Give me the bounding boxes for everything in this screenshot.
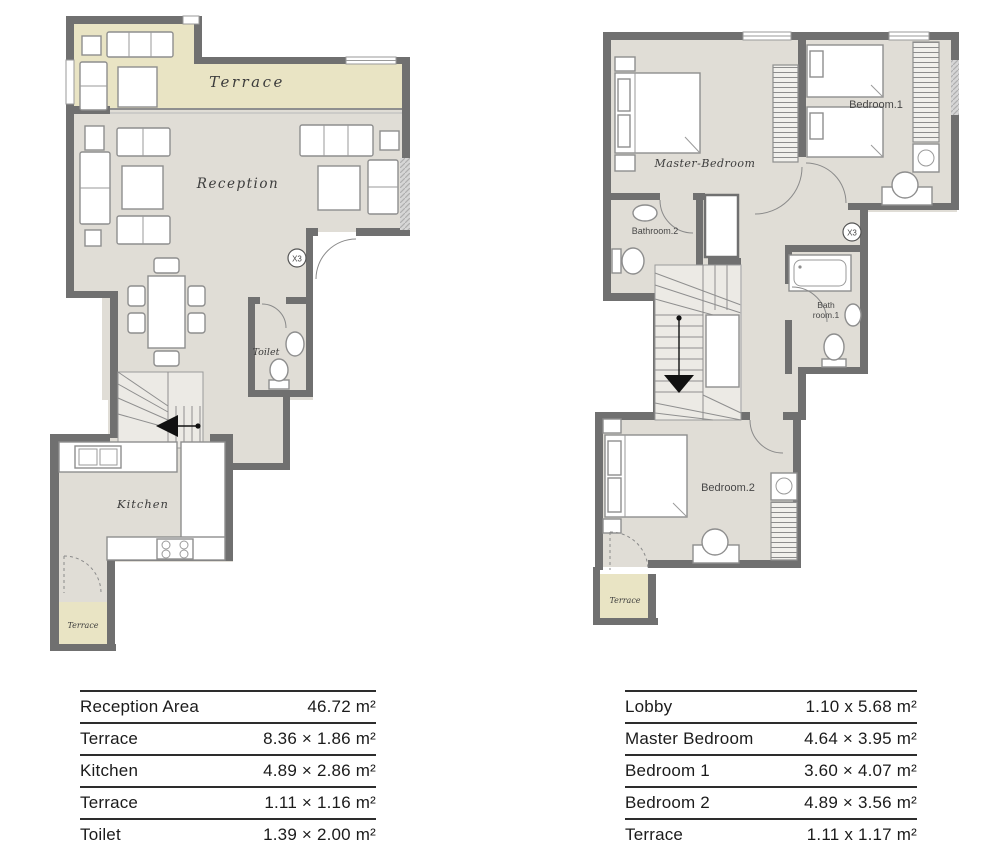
room-name: Master Bedroom	[625, 729, 753, 749]
room-name: Lobby	[625, 697, 672, 717]
table-row: Bedroom 2 4.89 × 3.56 m²	[625, 786, 917, 818]
bedroom1-label: Bedroom.1	[849, 99, 903, 111]
room-name: Toilet	[80, 825, 121, 845]
table-row: Terrace 8.36 × 1.86 m²	[80, 722, 376, 754]
table-row: Master Bedroom 4.64 × 3.95 m²	[625, 722, 917, 754]
bathroom1-label-line1: Bath	[817, 300, 835, 310]
ground-floor-plan: X3 Terrace Reception Toilet Kitchen Terr…	[50, 8, 422, 658]
room-size: 46.72 m²	[307, 697, 376, 717]
toilet-label: Toilet	[253, 347, 280, 358]
table-row: Kitchen 4.89 × 2.86 m²	[80, 754, 376, 786]
table-row: Terrace 1.11 x 1.17 m²	[625, 818, 917, 845]
room-name: Terrace	[80, 729, 138, 749]
room-name: Bedroom 1	[625, 761, 710, 781]
kitchen-label: Kitchen	[116, 497, 169, 511]
room-name: Reception Area	[80, 697, 199, 717]
room-name: Terrace	[625, 825, 683, 845]
staircase	[118, 372, 203, 448]
wardrobe	[773, 65, 798, 162]
reception-label: Reception	[196, 176, 279, 192]
terrace-label: Terrace	[609, 596, 640, 605]
room-size: 4.89 × 2.86 m²	[263, 761, 376, 781]
kitchen-lower-floor	[59, 562, 108, 602]
table-row: Reception Area 46.72 m²	[80, 690, 376, 722]
table-row: Terrace 1.11 × 1.16 m²	[80, 786, 376, 818]
staircase	[655, 265, 741, 420]
upper-floor-plan: X3	[593, 15, 968, 645]
bedroom2-label: Bedroom.2	[701, 482, 755, 494]
table-row: Toilet 1.39 × 2.00 m²	[80, 818, 376, 845]
window-hatch-right	[400, 158, 410, 230]
master-bedroom-label: Master-Bedroom	[654, 157, 756, 170]
wardrobe	[771, 502, 797, 560]
wardrobe	[913, 42, 939, 142]
room-size: 1.11 × 1.16 m²	[264, 793, 376, 813]
table-row: Lobby 1.10 x 5.68 m²	[625, 690, 917, 722]
room-size: 3.60 × 4.07 m²	[804, 761, 917, 781]
unit-marker-label: X3	[847, 229, 857, 238]
terrace-bottom-label: Terrace	[67, 621, 98, 630]
bathroom1-label-line2: room.1	[813, 310, 840, 320]
room-name: Terrace	[80, 793, 138, 813]
ground-floor-area-table: Reception Area 46.72 m² Terrace 8.36 × 1…	[80, 690, 376, 845]
floor-plan-sheet: X3 Terrace Reception Toilet Kitchen Terr…	[0, 0, 1004, 845]
unit-marker-label: X3	[292, 255, 302, 264]
room-size: 1.39 × 2.00 m²	[263, 825, 376, 845]
upper-floor-area-table: Lobby 1.10 x 5.68 m² Master Bedroom 4.64…	[625, 690, 917, 845]
room-size: 8.36 × 1.86 m²	[263, 729, 376, 749]
room-name: Bedroom 2	[625, 793, 710, 813]
room-size: 4.64 × 3.95 m²	[804, 729, 917, 749]
bathroom2-label: Bathroom.2	[632, 226, 679, 236]
room-size: 1.10 x 5.68 m²	[806, 697, 917, 717]
room-size: 4.89 × 3.56 m²	[804, 793, 917, 813]
table-row: Bedroom 1 3.60 × 4.07 m²	[625, 754, 917, 786]
room-name: Kitchen	[80, 761, 138, 781]
terrace-top-label: Terrace	[209, 73, 285, 91]
room-size: 1.11 x 1.17 m²	[807, 825, 917, 845]
